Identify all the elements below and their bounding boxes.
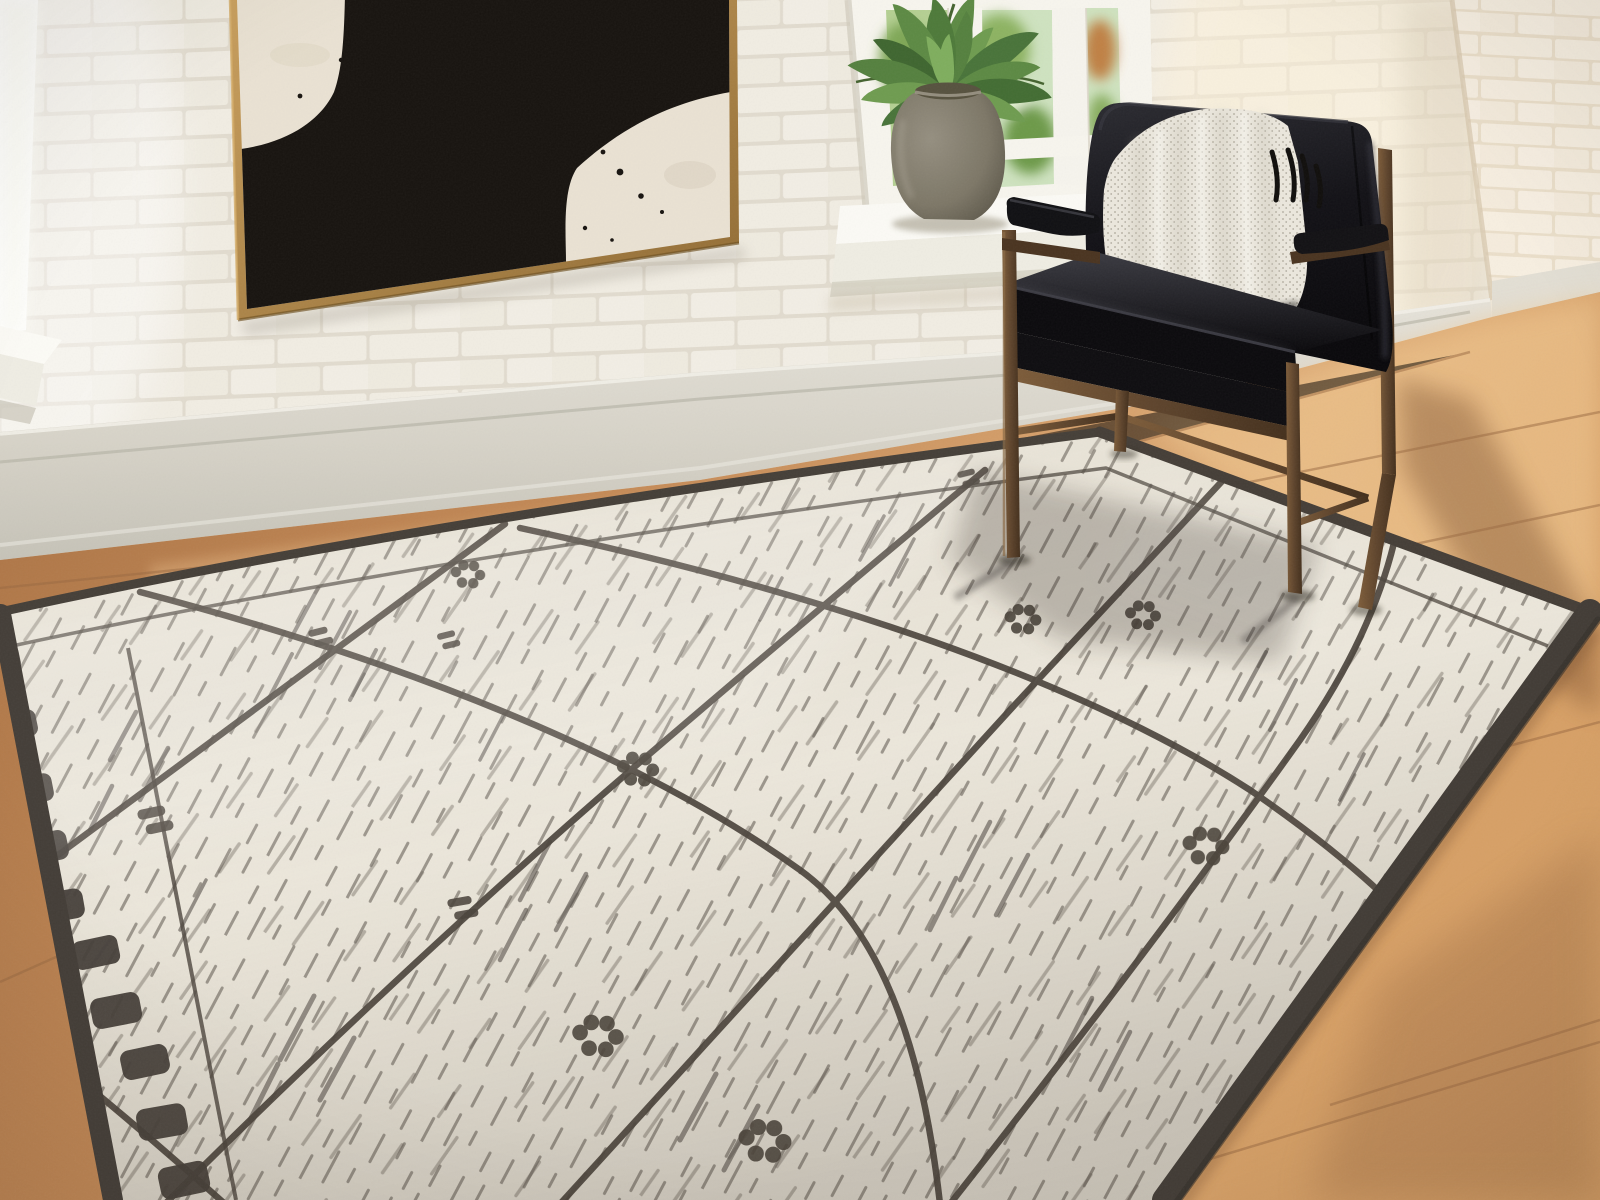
scene-canvas	[0, 0, 1600, 1200]
photo-grain	[0, 0, 1600, 1200]
room-scene	[0, 0, 1600, 1200]
